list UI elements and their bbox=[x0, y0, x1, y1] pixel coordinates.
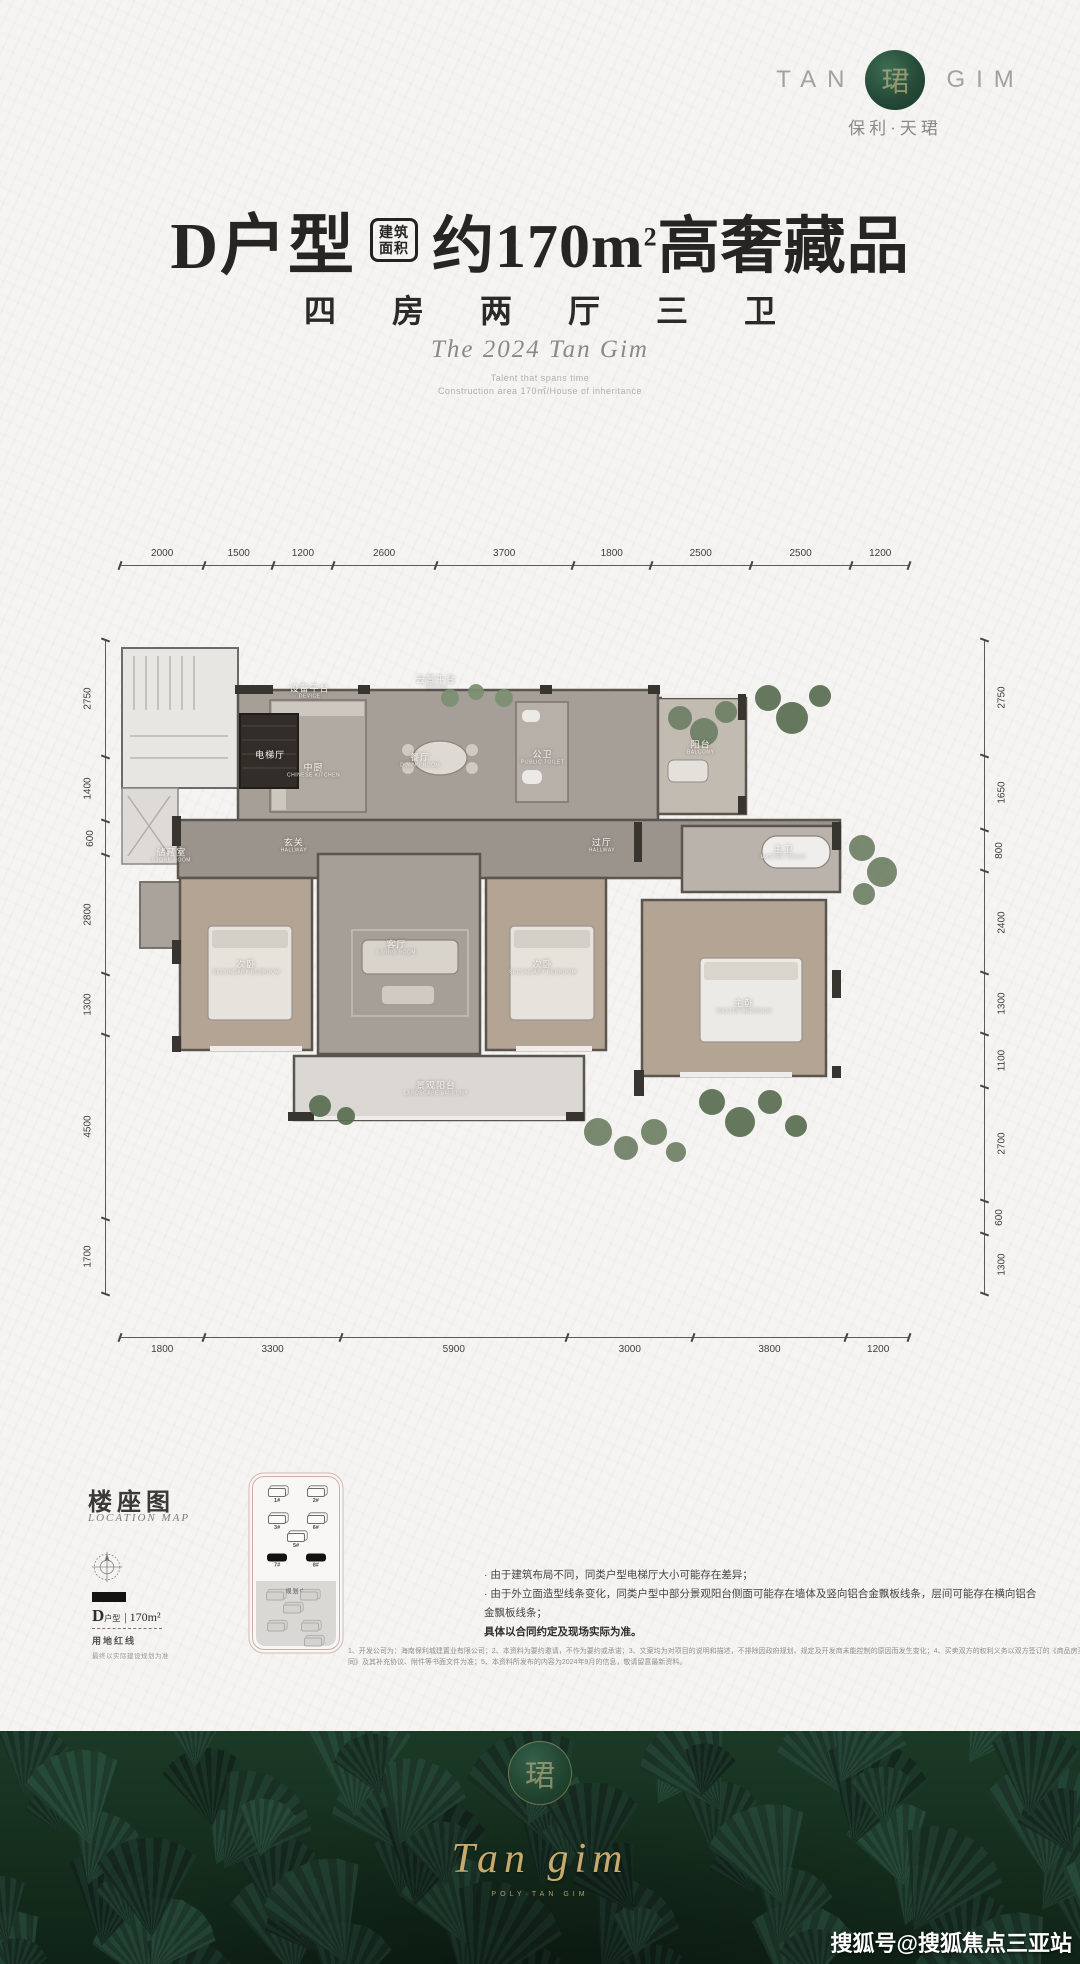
dimension-value: 2500 bbox=[751, 540, 851, 566]
legend-unit-label: D户型 | 170m² bbox=[92, 1606, 161, 1626]
dimension-value: 2600 bbox=[333, 540, 436, 566]
area-badge-line2: 面积 bbox=[379, 240, 409, 256]
dimension-value: 2400 bbox=[984, 871, 1010, 973]
fine-print-line-2: 同》及其补充协议、附件等书面文件为准；5、本资料所发布的内容为2024年9月的信… bbox=[348, 1657, 1048, 1668]
dimension-value: 3700 bbox=[436, 540, 573, 566]
disclaimer-bullet-1: · 由于建筑布局不同，同类户型电梯厅大小可能存在差异； bbox=[484, 1566, 1044, 1585]
dimension-value: 1200 bbox=[846, 1337, 910, 1363]
redline-dash-swatch bbox=[92, 1628, 162, 1629]
building-icon: 5# bbox=[287, 1533, 305, 1549]
dimension-value: 1650 bbox=[984, 756, 1010, 830]
footer-emblem-icon: 珺 bbox=[508, 1741, 572, 1805]
dimension-value: 1300 bbox=[80, 974, 106, 1035]
building-icon: 1# bbox=[268, 1488, 286, 1504]
page-title: D户型 建筑 面积 约170m2高奢藏品 bbox=[0, 192, 1080, 288]
site-map: 规划中 1#2#3#6#5#7#8# bbox=[252, 1476, 340, 1650]
dimension-value: 3300 bbox=[204, 1337, 340, 1363]
dimension-row-bottom: 180033005900300038001200 bbox=[120, 1337, 910, 1363]
area-headline: 约170m2高奢藏品 bbox=[432, 195, 910, 285]
dimension-value: 2700 bbox=[984, 1087, 1010, 1201]
taglines: Talent that spans time Construction area… bbox=[0, 372, 1080, 398]
tagline-2: Construction area 170㎡/House of inherita… bbox=[0, 385, 1080, 398]
building-icon: 3# bbox=[268, 1515, 286, 1531]
brand-logo: TAN 珺 GIM 保利·天珺 bbox=[770, 50, 1020, 139]
building-icon bbox=[266, 1591, 284, 1600]
building-icon bbox=[304, 1638, 322, 1647]
legend-unit-area: | 170m² bbox=[124, 1610, 160, 1624]
series-title: The 2024 Tan Gim bbox=[0, 336, 1080, 364]
location-map-subtitle: LOCATION MAP bbox=[88, 1512, 190, 1524]
dimension-value: 2750 bbox=[984, 640, 1010, 756]
area-badge-line1: 建筑 bbox=[379, 224, 409, 240]
watermark: 搜狐号@搜狐焦点三亚站 bbox=[831, 1926, 1072, 1958]
dimension-value: 1300 bbox=[984, 973, 1010, 1034]
brand-sub-logo: 保利·天珺 bbox=[770, 114, 1020, 139]
legend-unit-letter: D bbox=[92, 1606, 104, 1625]
brand-wordmark-right: GIM bbox=[935, 66, 1024, 94]
building-icon: 8# bbox=[306, 1554, 326, 1569]
dimension-value: 1800 bbox=[120, 1337, 204, 1363]
floor-plan-drawing bbox=[120, 640, 910, 1295]
legend-unit-suffix: 户型 bbox=[104, 1614, 120, 1623]
area-sup: 2 bbox=[644, 222, 658, 251]
dimension-value: 1300 bbox=[984, 1234, 1010, 1295]
dimension-value: 2000 bbox=[120, 540, 204, 566]
brand-emblem-icon: 珺 bbox=[865, 50, 925, 110]
floor-plan: 设备平台DEVICE云景平台DEVICE电梯厅中厨CHINESE KITCHEN… bbox=[120, 640, 910, 1295]
disclaimer-bullet-2: · 由于外立面造型线条变化，同类户型中部分景观阳台侧面可能存在墙体及竖向铝合金飘… bbox=[484, 1585, 1044, 1623]
poster-page: TAN 珺 GIM 保利·天珺 D户型 建筑 面积 约170m2高奢藏品 四 房… bbox=[0, 0, 1080, 1964]
dimension-value: 600 bbox=[80, 821, 106, 855]
footer-band: 珺 Tan gim POLY·TAN GIM 搜狐号@搜狐焦点三亚站 bbox=[0, 1731, 1080, 1964]
dimension-value: 1500 bbox=[204, 540, 273, 566]
dimension-value: 3000 bbox=[567, 1337, 693, 1363]
dimension-value: 2800 bbox=[80, 855, 106, 974]
tagline-1: Talent that spans time bbox=[0, 372, 1080, 385]
building-icon bbox=[301, 1622, 319, 1631]
building-icon: 7# bbox=[267, 1554, 287, 1569]
footer-script-sub: POLY·TAN GIM bbox=[0, 1891, 1080, 1898]
fine-print: 1、开发公司为：海南保利城建置业有限公司；2、本资料为要约邀请，不作为要约或承诺… bbox=[348, 1646, 1048, 1668]
dimension-value: 1800 bbox=[573, 540, 651, 566]
building-icon bbox=[283, 1605, 301, 1614]
area-value: 约170m bbox=[432, 213, 644, 281]
footer-script-logo: Tan gim bbox=[0, 1835, 1080, 1883]
dimension-value: 5900 bbox=[341, 1337, 567, 1363]
brand-emblem-glyph: 珺 bbox=[881, 60, 909, 100]
redline-label: 用地红线 bbox=[92, 1634, 136, 1647]
dimension-value: 3800 bbox=[693, 1337, 847, 1363]
dimension-value: 1200 bbox=[851, 540, 911, 566]
dimension-column-right: 2750165080024001300110027006001300 bbox=[984, 640, 1010, 1295]
area-tail: 高奢藏品 bbox=[658, 213, 910, 281]
dimension-value: 600 bbox=[984, 1201, 1010, 1235]
footer-emblem-glyph: 珺 bbox=[525, 1751, 555, 1795]
dimension-column-left: 275014006002800130045001700 bbox=[80, 640, 106, 1295]
dimension-value: 1200 bbox=[273, 540, 333, 566]
brand-wordmark-left: TAN bbox=[765, 66, 855, 94]
dimension-value: 800 bbox=[984, 830, 1010, 871]
layout-subtitle: 四 房 两 厅 三 卫 bbox=[0, 286, 1080, 332]
unit-name: D户型 bbox=[170, 192, 356, 288]
dimension-value: 2750 bbox=[80, 640, 106, 757]
disclaimer-block: · 由于建筑布局不同，同类户型电梯厅大小可能存在差异； · 由于外立面造型线条变… bbox=[484, 1566, 1044, 1642]
legend-current-building-swatch bbox=[92, 1592, 126, 1602]
fine-print-line-1: 1、开发公司为：海南保利城建置业有限公司；2、本资料为要约邀请，不作为要约或承诺… bbox=[348, 1646, 1048, 1657]
location-note: 最终以实际建设规划为准 bbox=[92, 1650, 169, 1660]
dimension-value: 2500 bbox=[651, 540, 751, 566]
dimension-row-top: 200015001200260037001800250025001200 bbox=[120, 540, 910, 566]
disclaimer-emphasis: 具体以合同约定及现场实际为准。 bbox=[484, 1623, 1044, 1642]
building-icon: 2# bbox=[307, 1488, 325, 1504]
dimension-value: 4500 bbox=[80, 1035, 106, 1219]
dimension-value: 1400 bbox=[80, 757, 106, 822]
building-icon: 6# bbox=[307, 1515, 325, 1531]
building-icon bbox=[300, 1591, 318, 1600]
dimension-value: 1700 bbox=[80, 1219, 106, 1295]
dimension-value: 1100 bbox=[984, 1034, 1010, 1087]
area-badge: 建筑 面积 bbox=[370, 218, 418, 262]
compass-icon bbox=[90, 1550, 124, 1584]
building-icon bbox=[267, 1622, 285, 1631]
